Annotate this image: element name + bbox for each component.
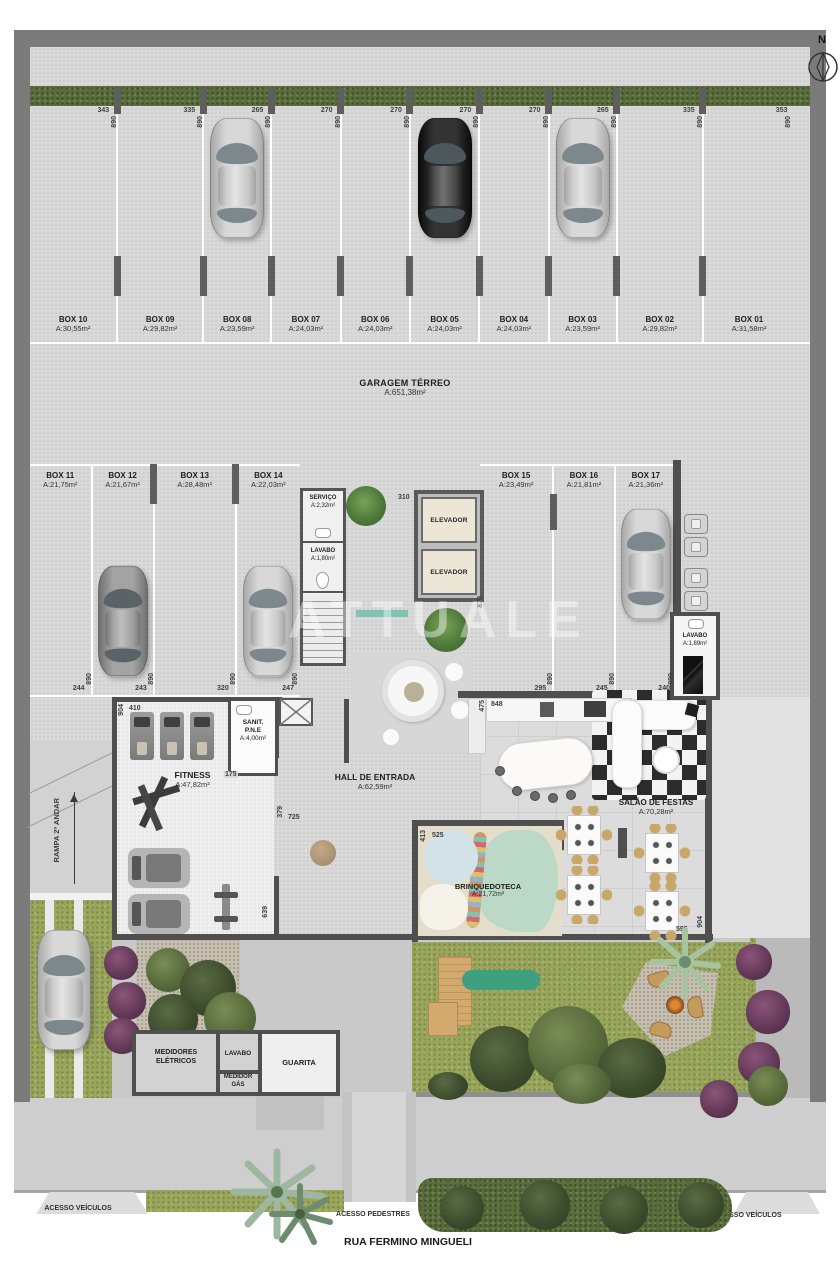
box-label: BOX 03A:23,59m² — [550, 315, 616, 333]
pillar — [200, 256, 207, 296]
box-area: A:21,81m² — [554, 480, 614, 489]
box-area: A:23,59m² — [204, 324, 270, 333]
pillar — [550, 494, 557, 530]
stool — [530, 791, 540, 801]
dim-width-label: 270 — [529, 107, 541, 114]
parking-box-16: 245 890 BOX 16A:21,81m² — [554, 466, 616, 695]
elevator-1: ELEVADOR — [421, 497, 477, 543]
dim-label: 639 — [262, 906, 269, 918]
car — [37, 930, 91, 1050]
dim-depth-label: 890 — [668, 673, 675, 685]
box-label: BOX 10A:30,55m² — [30, 315, 116, 333]
car — [98, 566, 148, 676]
armchair — [382, 728, 400, 746]
dim-depth-label: 890 — [86, 673, 93, 685]
dim-width-label: 343 — [97, 107, 109, 114]
sink-icon — [236, 705, 252, 715]
wall — [705, 691, 712, 943]
playground-deck — [428, 1002, 458, 1036]
armchair — [450, 700, 470, 720]
box-name: BOX 15 — [480, 471, 552, 480]
plant — [346, 486, 386, 526]
sofa — [612, 700, 642, 788]
dim-width-label: 320 — [217, 685, 229, 692]
box-name: BOX 14 — [237, 471, 300, 480]
meter-unit — [684, 568, 708, 588]
apron — [256, 1096, 324, 1130]
bush — [553, 1064, 611, 1104]
wall — [810, 30, 826, 1102]
stool — [512, 786, 522, 796]
car-roof — [218, 166, 256, 206]
dim-label: 475 — [479, 700, 486, 712]
dim-depth-label: 890 — [292, 673, 299, 685]
sanit-pne-room: SANIT.P.N.EA:4,00m² — [228, 698, 278, 776]
pillar — [613, 256, 620, 296]
gas-line1: MEDIDOR — [224, 1074, 252, 1080]
bush — [678, 1182, 724, 1228]
salao-name: SALÃO DE FESTAS — [596, 798, 716, 807]
dim-width-label: 270 — [390, 107, 402, 114]
box-area: A:31,58m² — [704, 324, 795, 333]
dim-depth-label: 890 — [543, 116, 550, 128]
dim-depth-label: 890 — [473, 116, 480, 128]
parking-box-09: 335 890 BOX 09A:29,82m² — [118, 104, 204, 342]
bush — [428, 1072, 468, 1100]
box-name: BOX 11 — [30, 471, 91, 480]
dim-width-label: 335 — [683, 107, 695, 114]
medidores-line1: MEDIDORES — [155, 1049, 197, 1056]
box-label: BOX 16A:21,81m² — [554, 471, 614, 489]
box-label: BOX 07A:24,03m² — [272, 315, 339, 333]
wall — [112, 697, 117, 939]
guarita-name: GUARITA — [282, 1058, 316, 1067]
box-label: BOX 17A:21,36m² — [616, 471, 676, 489]
column — [618, 828, 627, 858]
box-name: BOX 01 — [704, 315, 795, 324]
lavabo-social-area: A:1,89m² — [683, 641, 707, 647]
fitness-label: FITNESS A:47,82m² — [140, 770, 245, 789]
box-label: BOX 15A:23,49m² — [480, 471, 552, 489]
pillar — [545, 256, 552, 296]
stool — [548, 793, 558, 803]
pillar — [699, 256, 706, 296]
stool — [566, 790, 576, 800]
parking-box-02: 335 890 BOX 02A:29,82m² — [618, 104, 704, 342]
dim-depth-label: 890 — [148, 673, 155, 685]
car — [418, 118, 472, 238]
pillar — [337, 256, 344, 296]
dim-label: 310 — [398, 494, 410, 501]
medidor-gas-label: MEDIDORGÁS — [218, 1074, 258, 1089]
dim-depth-label: 890 — [197, 116, 204, 128]
bush — [440, 1186, 484, 1230]
dim-width-label: 243 — [135, 685, 147, 692]
meter-unit — [684, 514, 708, 534]
treadmill-icon — [128, 848, 190, 888]
cooktop-icon — [540, 702, 554, 717]
pillar — [268, 88, 275, 114]
parking-box-12: 243 890 BOX 12A:21,67m² — [93, 466, 155, 695]
car-roof — [628, 553, 663, 590]
guarita-label: GUARITA — [262, 1058, 336, 1067]
utility-block: MEDIDORESELÉTRICOS LAVABO MEDIDORGÁS GUA… — [132, 1030, 340, 1096]
barbell-icon — [214, 892, 238, 898]
marble-wall — [683, 656, 703, 694]
dim-depth-label: 890 — [335, 116, 342, 128]
hall-label: HALL DE ENTRADA A:62,59m² — [315, 772, 435, 791]
parking-box-13: 320 890 BOX 13A:28,48m² — [155, 466, 237, 695]
path-strip — [30, 893, 112, 900]
box-name: BOX 04 — [480, 315, 547, 324]
parking-box-08: 265 890 BOX 08A:23,59m² — [204, 104, 272, 342]
dim-label: 848 — [491, 701, 503, 708]
dim-depth-label: 890 — [404, 116, 411, 128]
flower-hedge — [104, 946, 138, 980]
treadmill-icon — [128, 894, 190, 934]
car-roof — [426, 166, 464, 206]
car — [621, 509, 671, 619]
dim-depth-label: 890 — [547, 673, 554, 685]
pillar — [476, 256, 483, 296]
dim-depth-label: 890 — [609, 673, 616, 685]
coffee-table — [652, 746, 680, 774]
box-name: BOX 06 — [342, 315, 409, 324]
box-area: A:24,03m² — [272, 324, 339, 333]
box-area: A:23,59m² — [550, 324, 616, 333]
medidores-label: MEDIDORESELÉTRICOS — [138, 1049, 214, 1067]
box-area: A:24,03m² — [480, 324, 547, 333]
garage-area: A:651,38m² — [300, 388, 510, 397]
brinquedoteca-area: A:21,72m² — [428, 891, 548, 898]
pillar — [406, 88, 413, 114]
dim-width-label: 265 — [252, 107, 264, 114]
flower-hedge — [736, 944, 772, 980]
elevator-2: ELEVADOR — [421, 549, 477, 595]
pouf — [310, 840, 336, 866]
barbell-icon — [214, 916, 238, 922]
sink-icon — [688, 619, 704, 629]
parking-box-04: 270 890 BOX 04A:24,03m² — [480, 104, 549, 342]
sink-icon — [315, 528, 331, 538]
box-name: BOX 17 — [616, 471, 676, 480]
wall — [14, 30, 826, 47]
elevator-label: ELEVADOR — [430, 517, 467, 524]
garage-title: GARAGEM TÉRREO — [300, 378, 510, 388]
box-area: A:22,03m² — [237, 480, 300, 489]
car-roof — [564, 166, 602, 206]
shaft-hatch-icon — [279, 698, 313, 726]
box-area: A:29,82m² — [118, 324, 202, 333]
box-area: A:21,36m² — [616, 480, 676, 489]
box-area: A:24,03m² — [411, 324, 478, 333]
pillar — [114, 88, 121, 114]
compass-icon — [805, 48, 840, 86]
box-label: BOX 09A:29,82m² — [118, 315, 202, 333]
box-name: BOX 02 — [618, 315, 702, 324]
dim-depth-label: 890 — [230, 673, 237, 685]
bush — [470, 1026, 536, 1092]
dim-label: 379 — [277, 806, 284, 818]
box-label: BOX 11A:21,75m² — [30, 471, 91, 489]
sanit-line1: SANIT. — [243, 719, 264, 726]
pillar — [476, 88, 483, 114]
box-label: BOX 14A:22,03m² — [237, 471, 300, 489]
hall-name: HALL DE ENTRADA — [315, 772, 435, 782]
flower-hedge — [108, 982, 146, 1020]
ramp-label: RAMPA 2º ANDAR — [52, 798, 61, 863]
dim-width-label: 240 — [658, 685, 670, 692]
car — [556, 118, 610, 238]
playground-slide — [462, 970, 540, 990]
dim-label: 413 — [420, 830, 427, 842]
box-name: BOX 10 — [30, 315, 116, 324]
parking-box-06: 270 890 BOX 06A:24,03m² — [342, 104, 411, 342]
watermark: ATTUALE — [288, 590, 590, 650]
north-label: N — [810, 33, 834, 47]
bush — [600, 1186, 648, 1234]
pillar — [268, 256, 275, 296]
lavabo-area: A:1,80m² — [311, 556, 335, 562]
box-label: BOX 05A:24,03m² — [411, 315, 478, 333]
box-label: BOX 13A:28,48m² — [155, 471, 235, 489]
flower-hedge — [746, 990, 790, 1034]
dim-width-label: 295 — [534, 685, 546, 692]
pillar — [545, 88, 552, 114]
brinquedoteca-room — [418, 826, 562, 936]
car — [244, 566, 294, 676]
dim-width-label: 270 — [321, 107, 333, 114]
pillar — [337, 88, 344, 114]
box-name: BOX 09 — [118, 315, 202, 324]
box-label: BOX 06A:24,03m² — [342, 315, 409, 333]
medidores-line2: ELÉTRICOS — [156, 1058, 196, 1065]
toilet-icon — [316, 572, 329, 589]
sanit-area: A:4,00m² — [240, 735, 266, 742]
brinquedoteca-name: BRINQUEDOTECA — [428, 882, 548, 891]
pillar — [114, 256, 121, 296]
parking-box-15: 295 890 BOX 15A:23,49m² — [480, 466, 554, 695]
dim-depth-label: 890 — [111, 116, 118, 128]
side-patio — [712, 697, 810, 938]
floor-plan: 343 890 BOX 10A:30,55m² 335 890 BOX 09A:… — [0, 0, 840, 1280]
box-area: A:28,48m² — [155, 480, 235, 489]
box-name: BOX 13 — [155, 471, 235, 480]
box-name: BOX 16 — [554, 471, 614, 480]
salao-area: A:70,28m² — [596, 807, 716, 816]
lavabo-room: LAVABOA:1,80m² — [303, 545, 343, 593]
wall — [344, 699, 349, 763]
dim-width-label: 247 — [282, 685, 294, 692]
box-name: BOX 12 — [93, 471, 153, 480]
pillar — [613, 88, 620, 114]
pillar — [699, 88, 706, 114]
lavabo-guarita-name: LAVABO — [225, 1050, 251, 1057]
flower-hedge — [700, 1080, 738, 1118]
lavabo-social-room: LAVABOA:1,89m² — [670, 612, 720, 700]
car-roof — [45, 978, 83, 1018]
fitness-area: A:47,82m² — [140, 780, 245, 789]
dim-depth-label: 890 — [785, 116, 792, 128]
parking-box-10: 343 890 BOX 10A:30,55m² — [30, 104, 118, 342]
box-area: A:21,75m² — [30, 480, 91, 489]
box-label: BOX 01A:31,58m² — [704, 315, 795, 333]
box-name: BOX 03 — [550, 315, 616, 324]
box-area: A:24,03m² — [342, 324, 409, 333]
play-rug — [480, 830, 558, 932]
parking-row-mid-left: 244 890 BOX 11A:21,75m² 243 890 BOX 12A:… — [30, 464, 300, 697]
box-label: BOX 02A:29,82m² — [618, 315, 702, 333]
dim-depth-label: 890 — [611, 116, 618, 128]
box-label: BOX 04A:24,03m² — [480, 315, 547, 333]
parking-box-01: 353 890 BOX 01A:31,58m² — [704, 104, 795, 342]
car-roof — [105, 610, 140, 647]
meter-unit — [684, 591, 708, 611]
dim-width-label: 270 — [460, 107, 472, 114]
parking-box-17: 240 890 BOX 17A:21,36m² — [616, 466, 676, 695]
lavabo-guarita-label: LAVABO — [218, 1050, 258, 1058]
gym-machine-icon — [130, 712, 154, 760]
box-name: BOX 05 — [411, 315, 478, 324]
ramp-arrow — [74, 792, 75, 884]
dim-depth-label: 890 — [265, 116, 272, 128]
fitness-name: FITNESS — [140, 770, 245, 780]
weight-bench-icon — [222, 884, 230, 930]
lavabo-social-name: LAVABO — [683, 633, 707, 639]
car-roof — [251, 610, 286, 647]
box-area: A:29,82m² — [618, 324, 702, 333]
brinquedoteca-label: BRINQUEDOTECA A:21,72m² — [428, 882, 548, 898]
entry-path-inner — [352, 1092, 406, 1202]
box-label: BOX 08A:23,59m² — [204, 315, 270, 333]
dim-width-label: 244 — [73, 685, 85, 692]
servico-name: SERVIÇO — [310, 495, 337, 501]
coffee-table — [404, 682, 424, 702]
bush — [520, 1180, 570, 1230]
pillar — [200, 88, 207, 114]
box-area: A:23,49m² — [480, 480, 552, 489]
lavabo-name: LAVABO — [311, 548, 335, 554]
wall — [14, 30, 30, 1102]
box-area: A:30,55m² — [30, 324, 116, 333]
parking-box-14: 247 890 BOX 14A:22,03m² — [237, 466, 300, 695]
hedge-top — [30, 86, 810, 106]
parking-row-mid-right: 295 890 BOX 15A:23,49m² 245 890 BOX 16A:… — [480, 464, 676, 697]
car — [210, 118, 264, 238]
palm-tree — [640, 922, 730, 1002]
dim-width-label: 245 — [596, 685, 608, 692]
kitchen-counter — [486, 698, 632, 722]
elevator-label: ELEVADOR — [430, 569, 467, 576]
gym-machine-icon — [190, 712, 214, 760]
palm-tree — [222, 1142, 352, 1262]
sanit-line2: P.N.E — [245, 727, 261, 734]
parking-box-07: 270 890 BOX 07A:24,03m² — [272, 104, 341, 342]
pillar — [406, 256, 413, 296]
party-table — [634, 824, 690, 882]
box-name: BOX 08 — [204, 315, 270, 324]
stool — [495, 766, 505, 776]
box-area: A:21,67m² — [93, 480, 153, 489]
servico-area: A:2,32m² — [311, 503, 335, 509]
salao-label: SALÃO DE FESTAS A:70,28m² — [596, 798, 716, 816]
parking-box-11: 244 890 BOX 11A:21,75m² — [30, 466, 93, 695]
access-label-left: ACESSO VEÍCULOS — [30, 1204, 126, 1213]
parking-row-top: 343 890 BOX 10A:30,55m² 335 890 BOX 09A:… — [30, 104, 810, 344]
parking-box-05: 270 890 BOX 05A:24,03m² — [411, 104, 480, 342]
gym-machine-icon — [160, 712, 184, 760]
dim-label: 725 — [288, 814, 300, 821]
dim-label: 904 — [118, 704, 125, 716]
gas-line2: GÁS — [231, 1082, 244, 1088]
hall-area: A:62,59m² — [315, 782, 435, 791]
dim-width-label: 265 — [597, 107, 609, 114]
bush — [748, 1066, 788, 1106]
armchair — [444, 662, 464, 682]
box-name: BOX 07 — [272, 315, 339, 324]
servico-room: SERVIÇOA:2,32m² — [303, 491, 343, 543]
elevator-shaft: ELEVADOR ELEVADOR — [414, 490, 484, 602]
dim-depth-label: 890 — [697, 116, 704, 128]
dim-width-label: 353 — [776, 107, 788, 114]
box-label: BOX 12A:21,67m² — [93, 471, 153, 489]
dim-width-label: 335 — [183, 107, 195, 114]
dim-label: 525 — [432, 832, 444, 839]
party-table — [556, 866, 612, 924]
stove-icon — [584, 701, 606, 717]
wall — [274, 876, 279, 936]
dim-label: 410 — [129, 705, 141, 712]
meter-unit — [684, 537, 708, 557]
garage-label: GARAGEM TÉRREO A:651,38m² — [300, 378, 510, 397]
parking-box-03: 265 890 BOX 03A:23,59m² — [550, 104, 618, 342]
